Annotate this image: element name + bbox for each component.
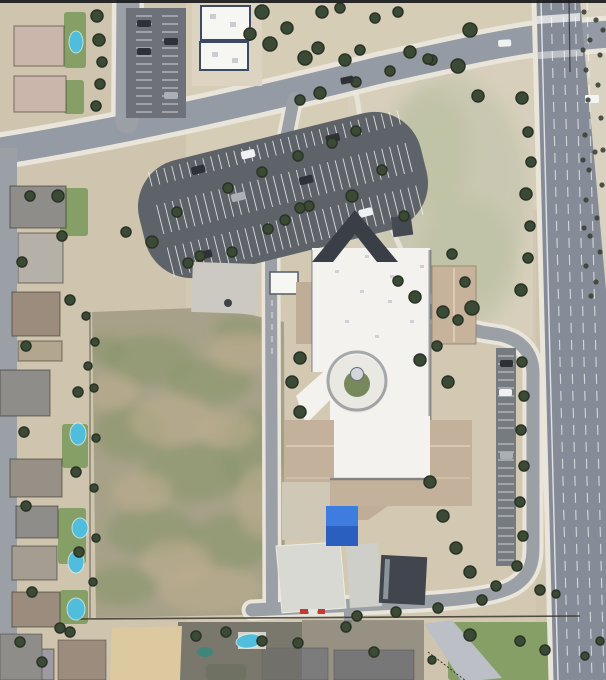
- field-brown-patch: [196, 412, 256, 448]
- tree: [351, 126, 361, 136]
- car: [500, 452, 513, 459]
- tree: [82, 312, 90, 320]
- tree: [437, 510, 449, 522]
- tree: [97, 57, 107, 67]
- tree: [460, 277, 470, 287]
- scrub-bush: [580, 47, 585, 52]
- tree: [21, 501, 31, 511]
- north-lot-asphalt: [126, 8, 186, 118]
- tree: [525, 221, 535, 231]
- tree: [95, 79, 105, 89]
- tree: [515, 497, 525, 507]
- tree: [221, 627, 231, 637]
- dark-outbuilding: [379, 555, 427, 605]
- upper-pad: [282, 482, 330, 540]
- tree: [404, 46, 416, 58]
- tree: [263, 37, 277, 51]
- tree: [312, 42, 324, 54]
- tree: [447, 249, 457, 259]
- tree: [516, 425, 526, 435]
- tree: [352, 611, 362, 621]
- tree: [581, 652, 589, 660]
- main-white-roof-north: [312, 248, 430, 372]
- tree: [93, 34, 105, 46]
- tree: [520, 188, 532, 200]
- scrub-bush: [586, 167, 591, 172]
- tree: [316, 6, 328, 18]
- sport-court-2: [346, 543, 382, 608]
- lawn: [64, 80, 84, 114]
- tree: [451, 59, 465, 73]
- tree: [442, 376, 454, 388]
- tree: [393, 276, 403, 286]
- tree: [433, 603, 443, 613]
- loop-parking: [496, 348, 516, 566]
- tree: [355, 45, 365, 55]
- blue-shade-canopy-top: [326, 506, 358, 526]
- tree: [465, 301, 479, 315]
- tree: [516, 92, 528, 104]
- tree: [414, 354, 426, 366]
- house-roof: [0, 370, 50, 416]
- tree: [257, 167, 267, 177]
- tree: [515, 636, 525, 646]
- tree: [27, 587, 37, 597]
- roof-vent: [410, 320, 414, 323]
- tree: [552, 590, 560, 598]
- tree: [295, 95, 305, 105]
- scrub-bush: [588, 293, 593, 298]
- tree: [472, 90, 484, 102]
- tree: [437, 306, 449, 318]
- scrub-bush: [592, 149, 597, 154]
- tree: [535, 585, 545, 595]
- tree: [453, 315, 463, 325]
- scrub-bush: [595, 82, 600, 87]
- scrub-bush: [580, 157, 585, 162]
- tree: [424, 476, 436, 488]
- roof-vent: [365, 255, 369, 258]
- tree: [52, 190, 64, 202]
- tree: [281, 22, 293, 34]
- roof-unit: [230, 22, 236, 27]
- tree: [370, 13, 380, 23]
- tree: [37, 657, 47, 667]
- tree: [450, 542, 462, 554]
- tree: [393, 7, 403, 17]
- scrub-bush: [594, 215, 599, 220]
- tree: [409, 291, 421, 303]
- tree: [257, 636, 267, 646]
- tree: [295, 203, 305, 213]
- scrub-bush: [583, 263, 588, 268]
- car: [137, 48, 151, 55]
- tree: [346, 190, 358, 202]
- tree: [223, 183, 233, 193]
- field-brown-patch: [140, 540, 212, 584]
- scrub-bush: [597, 249, 602, 254]
- tree: [71, 467, 81, 477]
- tree: [512, 561, 522, 571]
- tree: [92, 534, 100, 542]
- white-commercial-building: [192, 2, 262, 86]
- dark-backyard-east: [302, 620, 424, 680]
- tree: [19, 427, 29, 437]
- dirt-backyard: [110, 626, 182, 680]
- roof-unit: [232, 58, 238, 63]
- swimming-pool: [67, 598, 85, 620]
- roof-vent: [360, 290, 364, 293]
- tree: [526, 157, 536, 167]
- house-roof: [12, 546, 57, 580]
- tree: [17, 257, 27, 267]
- tree: [286, 376, 298, 388]
- roof-vent: [345, 320, 349, 323]
- tree: [540, 645, 550, 655]
- tree: [91, 101, 101, 111]
- dark-pool: [197, 647, 213, 657]
- tree: [15, 637, 25, 647]
- house-roof: [12, 292, 60, 336]
- tree: [518, 531, 528, 541]
- tree: [519, 461, 529, 471]
- tree: [293, 638, 303, 648]
- tree: [432, 341, 442, 351]
- tree: [293, 151, 303, 161]
- tree: [385, 66, 395, 76]
- house-roof: [14, 76, 66, 112]
- roof-unit: [210, 14, 216, 19]
- tree: [91, 338, 99, 346]
- tree: [91, 10, 103, 22]
- car: [498, 39, 511, 47]
- roof-vent: [390, 275, 394, 278]
- tree: [90, 384, 98, 392]
- tree: [25, 191, 35, 201]
- tree: [428, 656, 436, 664]
- white-roof-north: [201, 6, 250, 40]
- tree: [65, 295, 75, 305]
- roof-vent: [388, 300, 392, 303]
- house-roof: [10, 459, 62, 497]
- tree: [523, 127, 533, 137]
- swimming-pool: [69, 31, 83, 53]
- image-edge-strip: [0, 0, 606, 3]
- scrub-bush: [600, 27, 605, 32]
- tree: [335, 3, 345, 13]
- tree: [255, 5, 269, 19]
- south-white-center: [334, 416, 430, 478]
- tree: [491, 581, 501, 591]
- swimming-pool: [72, 518, 88, 538]
- tree: [244, 28, 256, 40]
- tree: [341, 622, 351, 632]
- pad-shade-tree: [224, 299, 232, 307]
- white-roof-south: [200, 42, 248, 70]
- tree: [191, 631, 201, 641]
- tree: [57, 231, 67, 241]
- roof-vent: [420, 265, 424, 268]
- scrub-bush: [581, 9, 586, 14]
- car: [164, 92, 178, 99]
- tree: [90, 484, 98, 492]
- scrub-bush: [582, 132, 587, 137]
- tree: [73, 387, 83, 397]
- tree: [84, 362, 92, 370]
- west-concrete-pad: [191, 262, 259, 314]
- satellite-map-canvas[interactable]: [0, 0, 606, 680]
- field-brown-patch: [112, 472, 172, 512]
- west-tan-wing: [296, 282, 312, 344]
- tree: [55, 623, 65, 633]
- scrub-bush: [587, 37, 592, 42]
- car: [164, 38, 178, 45]
- tree: [464, 629, 476, 641]
- tree: [477, 595, 487, 605]
- tree: [515, 284, 527, 296]
- tree: [227, 247, 237, 257]
- scrub-bush: [597, 52, 602, 57]
- curb-marker-red2: [318, 609, 325, 614]
- car: [499, 389, 512, 396]
- curb-marker-red: [300, 609, 308, 614]
- scrub-bush: [593, 279, 598, 284]
- tree: [339, 54, 351, 66]
- house-roof: [16, 506, 58, 538]
- swimming-pool: [70, 423, 86, 445]
- roof-vent: [335, 270, 339, 273]
- tree: [464, 566, 476, 578]
- tree: [183, 258, 193, 268]
- tree: [523, 253, 533, 263]
- house-roof: [58, 640, 106, 680]
- tree: [92, 434, 100, 442]
- tree: [280, 215, 290, 225]
- tree: [195, 251, 205, 261]
- tree: [377, 165, 387, 175]
- scrub-bush: [585, 97, 590, 102]
- tree: [463, 23, 477, 37]
- scrub-bush: [600, 147, 605, 152]
- north-parking-lot: [126, 8, 186, 118]
- tree: [298, 51, 312, 65]
- roof-unit: [212, 52, 218, 57]
- scrub-bush: [583, 197, 588, 202]
- house-roof: [12, 592, 60, 627]
- car: [500, 360, 513, 367]
- tree: [517, 357, 527, 367]
- rotunda-dome: [351, 368, 364, 381]
- tree: [423, 54, 433, 64]
- white-canopy: [270, 272, 298, 294]
- tree: [369, 647, 379, 657]
- aerial-imagery: [0, 0, 606, 680]
- tree: [74, 547, 84, 557]
- tree: [172, 207, 182, 217]
- curb-marker-white: [309, 609, 317, 614]
- blue-shade-canopy-bottom: [326, 526, 358, 546]
- scrub-bush: [581, 225, 586, 230]
- tree: [146, 236, 158, 248]
- scrub-bush: [583, 67, 588, 72]
- tree: [263, 224, 273, 234]
- scrub-bush: [593, 17, 598, 22]
- scrub-bush: [587, 233, 592, 238]
- car: [137, 20, 151, 27]
- tree: [294, 406, 306, 418]
- tree: [65, 627, 75, 637]
- tree: [327, 138, 337, 148]
- sport-court: [276, 542, 346, 613]
- scrub-bush: [599, 182, 604, 187]
- house-roof: [14, 26, 64, 66]
- tree: [21, 341, 31, 351]
- scrub-bush: [598, 115, 603, 120]
- roof-vent: [375, 335, 379, 338]
- tree: [391, 607, 401, 617]
- tree: [314, 87, 326, 99]
- tree: [121, 227, 131, 237]
- tree: [399, 211, 409, 221]
- tree: [89, 578, 97, 586]
- tree: [294, 352, 306, 364]
- tree: [519, 391, 529, 401]
- tree: [596, 637, 604, 645]
